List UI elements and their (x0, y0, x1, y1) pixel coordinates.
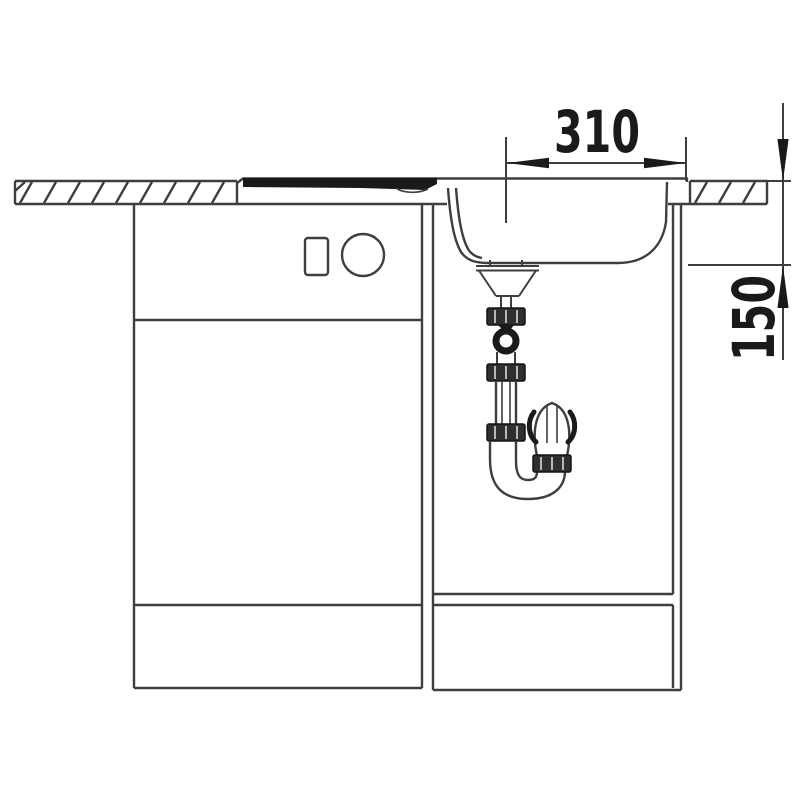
compression-nut-4 (533, 455, 571, 472)
worktop-left-section (15, 181, 237, 204)
drain-funnel-flange (476, 266, 539, 271)
tail-pipe-outer (496, 381, 516, 424)
tail-pipe-inner (502, 381, 510, 424)
worktop-left-hatching (15, 182, 224, 203)
dimension-width: 310 (506, 98, 687, 223)
hanger-ring (496, 331, 516, 351)
sink-bowl-outer-wall (448, 182, 667, 263)
dimension-depth-arrow-top (777, 139, 788, 181)
worktop-right-section (690, 181, 767, 204)
control-panel-knob (342, 234, 384, 276)
right-cabinet (433, 204, 681, 690)
drain-funnel-cone (479, 271, 536, 309)
worktop-right-hatching (695, 182, 755, 203)
control-panel-rectangle (305, 238, 328, 275)
dimension-depth: 150 (688, 103, 791, 361)
dimension-width-arrow-left (507, 158, 549, 169)
sink-drainer-profile (243, 178, 437, 190)
dimension-width-label: 310 (554, 98, 640, 166)
compression-nut-2 (487, 364, 525, 381)
trap-outlet-elbow (535, 403, 570, 456)
dimension-depth-extension-lines (688, 181, 791, 265)
sink-installation-diagram: 310 150 (0, 0, 800, 800)
trap-outlet-elbow-inner (547, 406, 557, 443)
drain-siphon-assembly (476, 260, 575, 499)
dimension-depth-label: 150 (720, 275, 788, 361)
technical-drawing-canvas: 310 150 (0, 0, 800, 800)
right-cabinet-frame (433, 204, 681, 690)
left-cabinet (134, 204, 422, 688)
dimension-width-arrow-right (644, 158, 686, 169)
compression-nut-1 (487, 308, 525, 325)
compression-nut-3 (487, 424, 525, 441)
left-cabinet-frame (134, 204, 422, 688)
